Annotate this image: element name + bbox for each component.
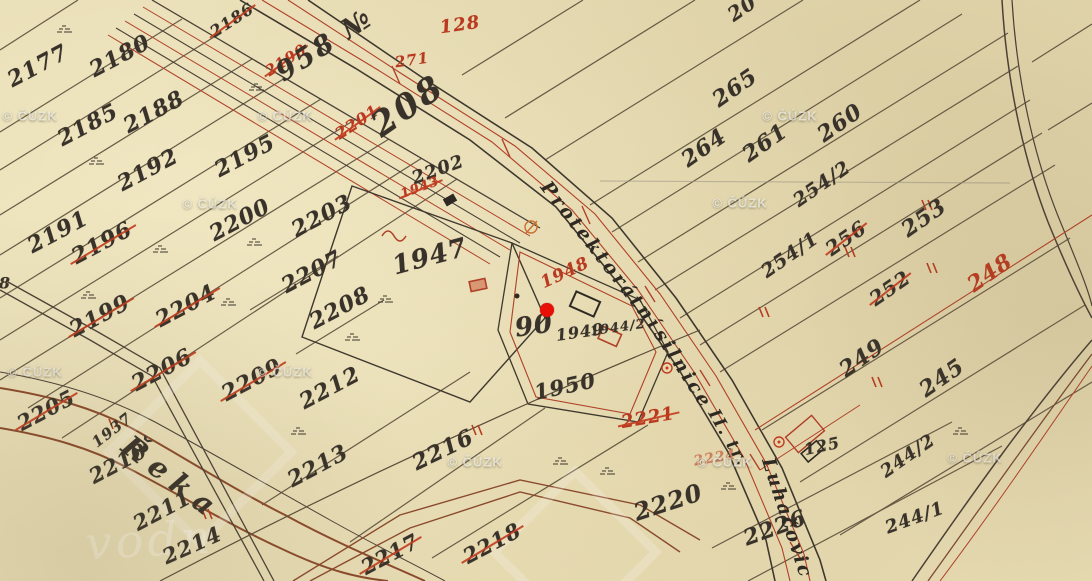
- cuzk-watermark: © ČÚZK: [7, 365, 62, 380]
- cuzk-watermark: © ČÚZK: [257, 365, 312, 380]
- cuzk-watermark: © ČÚZK: [447, 455, 502, 470]
- cuzk-watermark: © ČÚZK: [182, 197, 237, 212]
- cuzk-watermark: © ČÚZK: [947, 451, 1002, 466]
- cuzk-watermark: © ČÚZK: [762, 109, 817, 124]
- parcel-number-label: 8: [0, 274, 11, 293]
- cuzk-watermark: © ČÚZK: [2, 109, 57, 124]
- cuzk-watermark: © ČÚZK: [712, 196, 767, 211]
- cuzk-watermark: © ČÚZK: [697, 455, 752, 470]
- selected-point-marker[interactable]: [540, 303, 554, 317]
- farmstead-cluster: [382, 194, 668, 422]
- cuzk-watermark: © ČÚZK: [257, 109, 312, 124]
- right-road: [755, 0, 1092, 581]
- cadastral-map-canvas[interactable]: vodn 21772180218521882192219521912196220…: [0, 0, 1092, 581]
